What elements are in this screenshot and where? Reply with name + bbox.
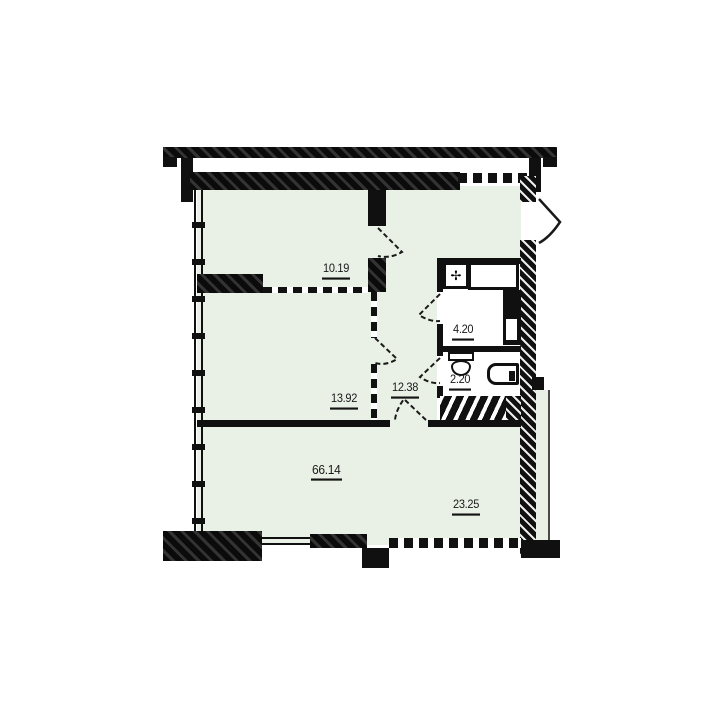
right-wall-tab xyxy=(532,377,544,390)
area-label-bathroom: 4.20 xyxy=(452,323,474,340)
living-room-top-wall-left xyxy=(197,420,390,427)
duct-shaft-hatched xyxy=(440,396,506,420)
bottom-right-corner-block xyxy=(521,540,560,558)
faucet xyxy=(509,371,515,381)
window-mullion xyxy=(192,333,205,339)
dashed-partition-vertical-upper xyxy=(371,292,377,338)
partition-room-a-lower xyxy=(368,258,386,292)
bathtub xyxy=(468,262,519,290)
window-mullion xyxy=(192,259,205,265)
area-label-total: 66.14 xyxy=(311,463,342,480)
wall-niche xyxy=(506,319,517,340)
bottom-wall-hatched-segment xyxy=(310,534,367,548)
canopy-slab xyxy=(163,147,557,158)
duct-shaft-corner xyxy=(506,396,521,420)
bottom-dashed-wall xyxy=(389,538,521,548)
entrance-door-swing xyxy=(539,199,560,243)
window-mullion xyxy=(192,407,205,413)
window-mullion xyxy=(192,296,205,302)
top-exterior-wall xyxy=(190,172,460,190)
right-wall-above-door xyxy=(520,176,536,202)
area-label-room-b: 13.92 xyxy=(330,392,358,409)
bottom-pier-block xyxy=(362,548,389,568)
vent-icon: ✢ xyxy=(451,268,462,284)
right-exterior-wall xyxy=(520,240,536,556)
area-label-room-a: 10.19 xyxy=(322,262,350,279)
window-mullion xyxy=(192,518,205,524)
bottom-left-wall-block xyxy=(163,531,262,561)
partition-room-a-upper xyxy=(368,190,386,226)
bottom-window-inner-line xyxy=(262,543,310,545)
window-mullion xyxy=(192,222,205,228)
window-mullion xyxy=(192,481,205,487)
dashed-partition-horizontal xyxy=(263,287,368,293)
window-mullion xyxy=(192,444,205,450)
area-label-hallway: 12.38 xyxy=(391,381,419,398)
wall-niche-column xyxy=(503,290,521,345)
area-label-living-room: 23.25 xyxy=(452,498,480,515)
facade-strip xyxy=(536,390,550,545)
vent-shaft-symbol: ✢ xyxy=(443,262,469,289)
sink xyxy=(487,363,519,385)
window-mullion xyxy=(192,370,205,376)
living-room-top-wall-right xyxy=(428,420,521,427)
canopy-left-tab xyxy=(163,157,177,167)
dashed-partition-vertical-lower xyxy=(371,364,377,420)
area-label-wc: 2.20 xyxy=(449,373,471,390)
bottom-window-outer-line xyxy=(262,537,310,539)
canopy-right-tab xyxy=(543,157,557,167)
top-dashed-boundary xyxy=(458,173,528,183)
partition-stub-room-a xyxy=(197,274,263,293)
floor-plan: ✢ 10.19 13.92 12.38 4.20 2.20 66.14 23.2… xyxy=(0,0,720,720)
